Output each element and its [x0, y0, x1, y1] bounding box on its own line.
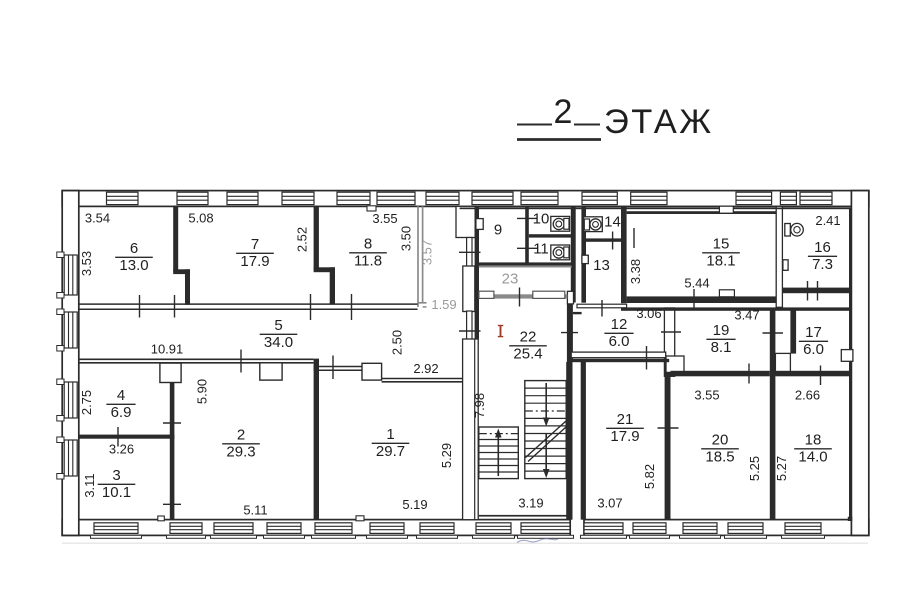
svg-text:6.0: 6.0: [609, 333, 630, 350]
svg-text:7.3: 7.3: [812, 256, 833, 273]
svg-text:2: 2: [554, 93, 573, 131]
svg-text:16: 16: [814, 239, 831, 256]
svg-text:5.44: 5.44: [684, 276, 709, 291]
svg-text:34.0: 34.0: [264, 334, 293, 351]
svg-text:22: 22: [520, 329, 537, 346]
svg-text:5.27: 5.27: [774, 456, 789, 481]
svg-text:13.0: 13.0: [119, 257, 148, 274]
svg-text:7.98: 7.98: [472, 393, 487, 418]
svg-text:3.11: 3.11: [82, 473, 97, 497]
svg-text:2.50: 2.50: [390, 330, 405, 355]
svg-text:10.1: 10.1: [102, 484, 131, 501]
svg-text:15: 15: [713, 236, 730, 253]
svg-text:18.1: 18.1: [706, 253, 735, 270]
svg-text:6: 6: [130, 240, 138, 257]
svg-text:6.0: 6.0: [803, 341, 824, 358]
svg-text:18: 18: [805, 432, 822, 449]
svg-text:1.59: 1.59: [431, 297, 456, 312]
svg-text:29.7: 29.7: [376, 443, 405, 460]
svg-text:3.47: 3.47: [734, 308, 759, 323]
svg-text:2.52: 2.52: [295, 227, 310, 252]
svg-text:2.41: 2.41: [815, 213, 840, 228]
svg-text:17: 17: [805, 324, 822, 341]
svg-text:3.07: 3.07: [597, 496, 622, 511]
svg-text:5.29: 5.29: [439, 443, 454, 468]
svg-text:3.19: 3.19: [518, 496, 543, 511]
svg-text:5.19: 5.19: [402, 497, 427, 512]
svg-text:5.11: 5.11: [243, 503, 267, 518]
svg-text:18.5: 18.5: [705, 449, 734, 466]
svg-text:20: 20: [712, 432, 729, 449]
svg-text:13: 13: [593, 257, 610, 274]
svg-text:12: 12: [611, 316, 628, 333]
svg-text:5.82: 5.82: [642, 464, 657, 489]
svg-text:3.57: 3.57: [420, 240, 435, 265]
svg-text:23: 23: [502, 271, 519, 288]
svg-text:3.06: 3.06: [636, 306, 661, 321]
svg-text:5.25: 5.25: [747, 456, 762, 481]
svg-text:5.90: 5.90: [195, 379, 210, 404]
svg-text:3.26: 3.26: [109, 442, 134, 457]
svg-text:5.08: 5.08: [188, 211, 213, 226]
svg-text:3.50: 3.50: [399, 226, 414, 251]
svg-text:3.54: 3.54: [85, 211, 110, 226]
svg-text:3.55: 3.55: [372, 211, 397, 226]
svg-text:2: 2: [237, 427, 245, 444]
svg-text:3: 3: [112, 467, 120, 484]
svg-text:14.0: 14.0: [798, 449, 827, 466]
svg-text:4: 4: [117, 387, 125, 404]
svg-text:14: 14: [604, 214, 621, 231]
svg-text:3.55: 3.55: [694, 388, 719, 403]
svg-text:3.53: 3.53: [79, 251, 94, 276]
svg-text:10: 10: [533, 211, 550, 228]
svg-text:29.3: 29.3: [226, 444, 255, 461]
svg-text:2.66: 2.66: [795, 388, 820, 403]
svg-text:2.75: 2.75: [79, 390, 94, 415]
svg-text:11.8: 11.8: [354, 253, 382, 270]
svg-text:9: 9: [494, 222, 502, 239]
svg-text:7: 7: [251, 236, 259, 253]
svg-text:17.9: 17.9: [240, 253, 269, 270]
svg-text:19: 19: [713, 322, 730, 339]
svg-text:2.92: 2.92: [413, 361, 438, 376]
svg-text:6.9: 6.9: [111, 404, 132, 421]
svg-text:10.91: 10.91: [151, 342, 184, 357]
svg-text:25.4: 25.4: [513, 346, 542, 363]
svg-text:8: 8: [364, 236, 372, 253]
svg-text:1: 1: [386, 426, 394, 443]
svg-text:11: 11: [533, 241, 549, 258]
svg-text:17.9: 17.9: [610, 428, 639, 445]
svg-text:8.1: 8.1: [711, 339, 732, 356]
svg-text:21: 21: [617, 411, 634, 428]
svg-text:5: 5: [274, 317, 282, 334]
svg-text:ЭТАЖ: ЭТАЖ: [604, 103, 714, 141]
svg-text:3.38: 3.38: [628, 259, 643, 284]
